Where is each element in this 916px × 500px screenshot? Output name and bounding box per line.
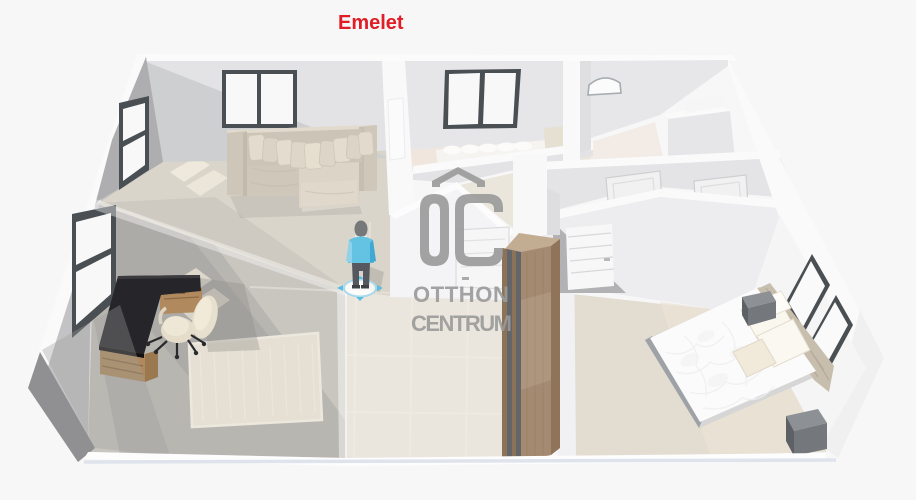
svg-text:Emelet: Emelet (338, 12, 404, 34)
svg-text:OTTHON: OTTHON (413, 282, 509, 307)
svg-text:CENTRUM: CENTRUM (411, 311, 511, 336)
